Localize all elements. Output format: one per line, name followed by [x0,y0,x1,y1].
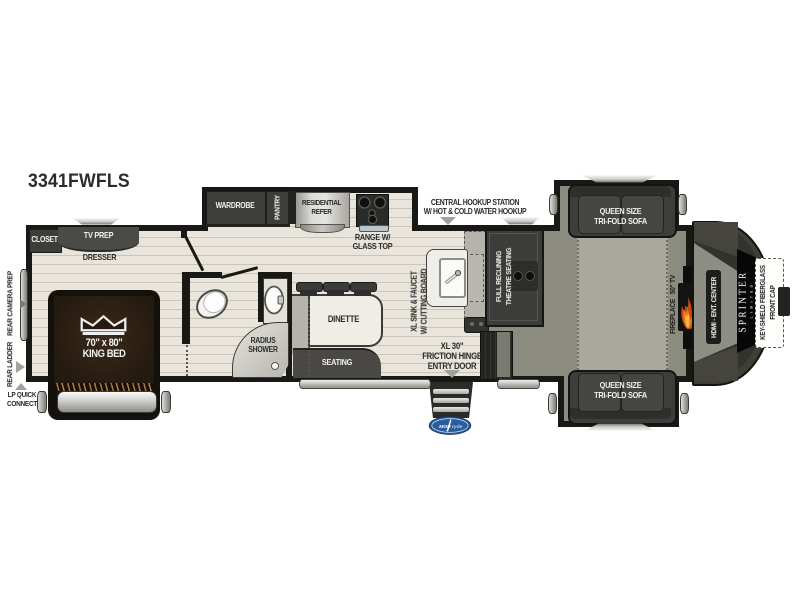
svg-text:ryde: ryde [452,424,463,430]
